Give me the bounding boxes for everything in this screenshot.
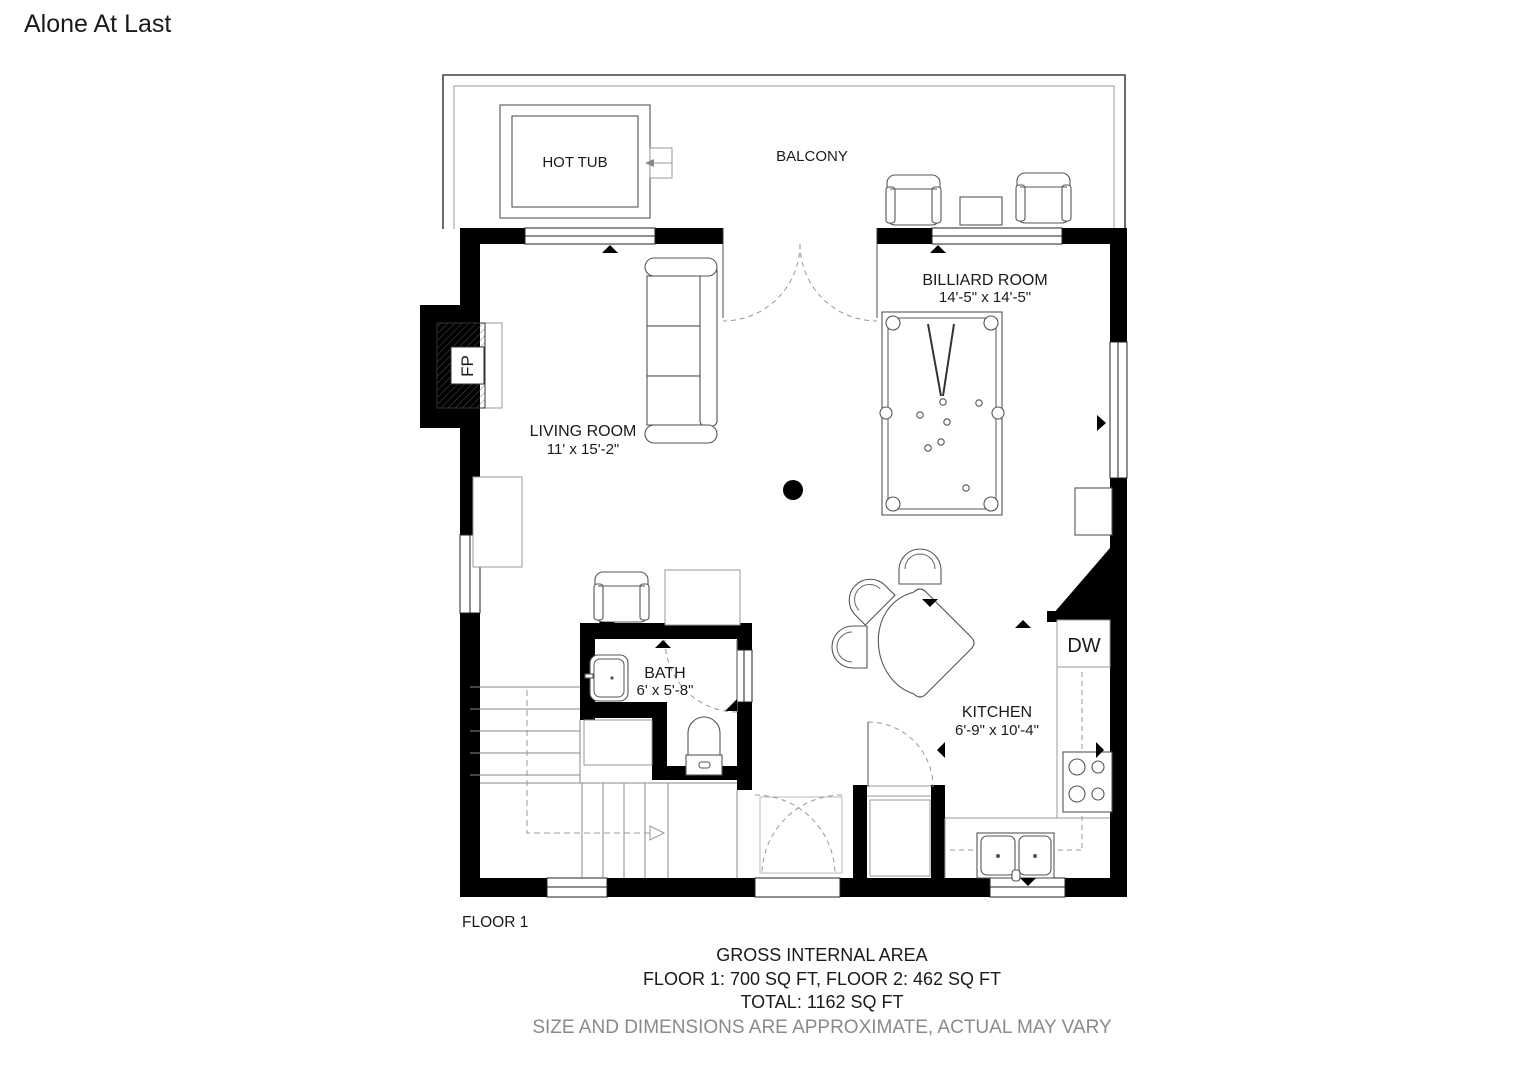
billiard-room-dims: 14'-5" x 14'-5" xyxy=(939,289,1031,306)
window-right xyxy=(1110,342,1127,478)
billiard-room: BILLIARD ROOM 14'-5" x 14'-5" xyxy=(880,272,1112,535)
marker-left-icon xyxy=(937,742,945,758)
balcony: HOT TUB BALCONY xyxy=(443,75,1125,229)
gross-area-heading: GROSS INTERNAL AREA xyxy=(716,945,927,965)
kitchen-sink xyxy=(977,833,1054,881)
billiard-room-label: BILLIARD ROOM xyxy=(922,272,1047,289)
column-dot xyxy=(783,480,803,500)
window-bath xyxy=(737,650,752,702)
window-bottom-left xyxy=(547,878,607,897)
fireplace: FP xyxy=(437,323,502,408)
bath-dims: 6' x 5'-8" xyxy=(637,682,694,699)
dining-chair-3 xyxy=(832,626,867,668)
marker-right-icon xyxy=(1097,415,1106,431)
side-table xyxy=(473,477,522,567)
balcony-table xyxy=(960,197,1002,225)
window-top-right xyxy=(932,228,1062,244)
balcony-chair-1 xyxy=(886,175,941,225)
marker-up-icon xyxy=(930,245,946,253)
hot-tub-label: HOT TUB xyxy=(542,154,607,171)
sofa xyxy=(645,258,717,443)
marker-up-icon xyxy=(655,640,671,648)
cabinet xyxy=(1075,488,1112,535)
dishwasher: DW xyxy=(1057,620,1110,667)
bath-label: BATH xyxy=(644,665,685,682)
dining-table-set xyxy=(832,549,974,697)
plan-markers xyxy=(471,245,1106,886)
footer: FLOOR 1 GROSS INTERNAL AREA FLOOR 1: 700… xyxy=(462,914,1112,1038)
fireplace-label: FP xyxy=(458,355,477,377)
bath-area-chair xyxy=(594,572,649,622)
window-top-left xyxy=(525,228,655,244)
toilet xyxy=(686,717,722,775)
bath-sink xyxy=(585,655,628,701)
opening-top-doors xyxy=(723,228,877,244)
entry-nook xyxy=(870,800,930,876)
floor-areas-line: FLOOR 1: 700 SQ FT, FLOOR 2: 462 SQ FT xyxy=(643,969,1001,989)
under-stair-closet xyxy=(584,720,652,765)
marker-up-icon xyxy=(1015,620,1031,628)
total-area-line: TOTAL: 1162 SQ FT xyxy=(740,992,903,1012)
fireplace-hearth xyxy=(485,323,502,408)
kitchen-dims: 6'-9" x 10'-4" xyxy=(955,722,1039,739)
marker-up-icon xyxy=(602,245,618,253)
floor-plan-svg: Alone At Last HOT TUB BALCONY xyxy=(0,0,1528,1080)
living-room-dims: 11' x 15'-2" xyxy=(547,441,619,458)
stair-direction-arrow-icon xyxy=(650,826,664,840)
balcony-chair-2 xyxy=(1016,173,1071,223)
dining-table xyxy=(878,589,974,697)
floor-plan-page: Alone At Last HOT TUB BALCONY xyxy=(0,0,1528,1080)
living-room: LIVING ROOM 11' x 15'-2" xyxy=(473,258,803,567)
living-room-label: LIVING ROOM xyxy=(530,423,637,440)
balcony-label: BALCONY xyxy=(776,148,848,165)
door-opening-bottom xyxy=(755,878,840,897)
hot-tub: HOT TUB xyxy=(500,105,672,218)
marker-corner-icon xyxy=(725,699,737,711)
stove xyxy=(1063,752,1112,812)
disclaimer-line: SIZE AND DIMENSIONS ARE APPROXIMATE, ACT… xyxy=(532,1017,1112,1038)
dining-chair-1 xyxy=(899,549,941,584)
kitchen-label: KITCHEN xyxy=(962,704,1032,721)
dishwasher-label: DW xyxy=(1067,635,1100,657)
floor-label: FLOOR 1 xyxy=(462,914,528,931)
chamfer-wall xyxy=(1047,548,1110,621)
opening-kitchen-door xyxy=(867,785,931,797)
pool-table xyxy=(880,312,1004,515)
page-title: Alone At Last xyxy=(24,10,171,38)
vanity-cabinet xyxy=(665,570,740,625)
